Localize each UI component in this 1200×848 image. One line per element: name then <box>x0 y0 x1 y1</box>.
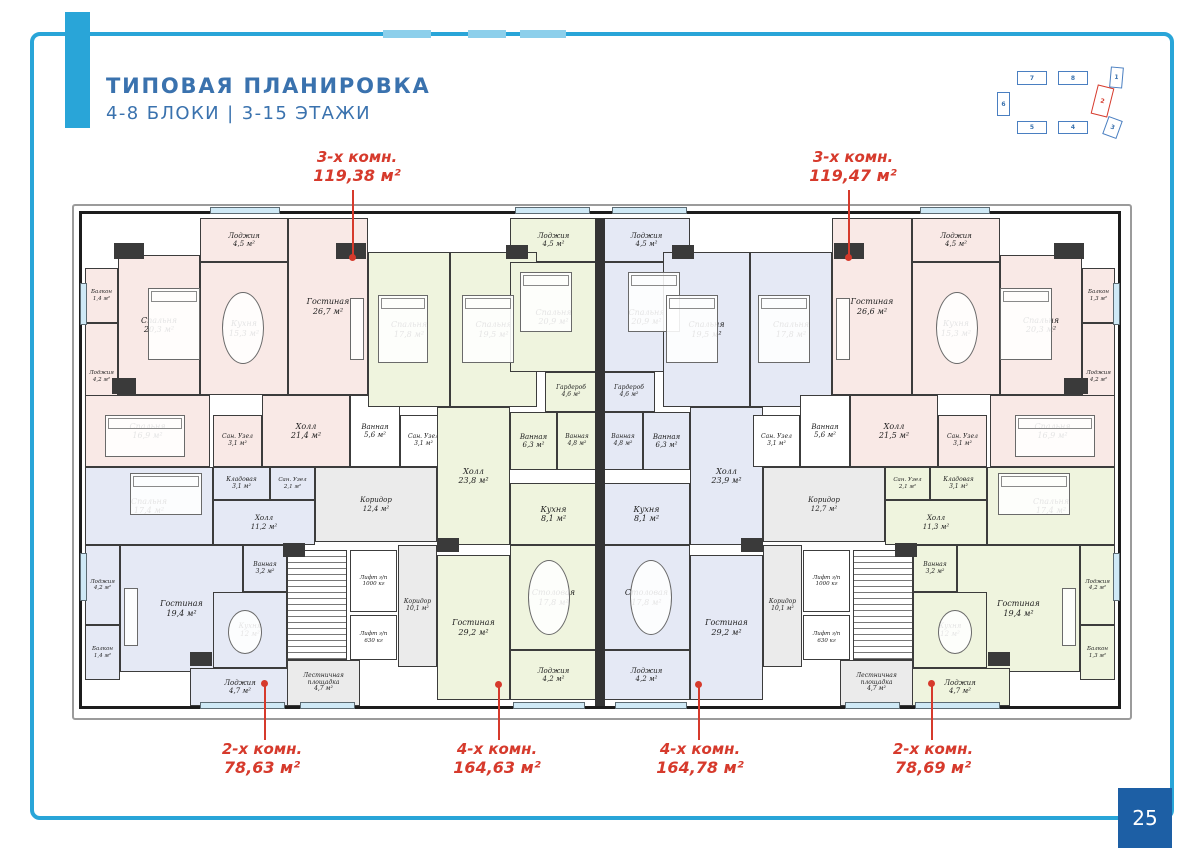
room-area: 3,1 м² <box>414 441 433 448</box>
room-label: Холл <box>255 514 273 522</box>
watermark-fragment <box>520 30 566 38</box>
room-label: Коридор <box>808 496 840 504</box>
table-icon <box>938 610 972 654</box>
room: Лоджия4,2 м² <box>85 545 120 625</box>
room: Кухня8,1 м² <box>510 483 597 545</box>
room-area: 3,1 м² <box>228 441 247 448</box>
leader-line <box>848 190 850 257</box>
table-icon <box>630 560 672 635</box>
bed-icon <box>148 288 200 360</box>
wall-pier <box>672 245 694 259</box>
room: Ванная4,8 м² <box>603 412 643 470</box>
room-area: 2,1 м² <box>284 484 301 490</box>
room-area: 4,5 м² <box>945 240 967 248</box>
room-area: 4,2 м² <box>543 675 565 683</box>
room: Сан. Узел3,1 м² <box>213 415 262 467</box>
elevator: Лифт г/п630 кг <box>350 615 397 660</box>
room-label: Лоджия <box>944 679 976 687</box>
leader-line <box>698 685 700 740</box>
wall-pier <box>506 245 528 259</box>
room-area: 19,4 м² <box>1003 609 1033 618</box>
bed-icon <box>998 473 1070 515</box>
table-icon <box>228 610 262 654</box>
room-label: Лоджия <box>228 232 260 240</box>
room: Лоджия4,2 м² <box>1080 545 1115 625</box>
room-label: Лоджия <box>538 232 570 240</box>
wall-pier <box>112 378 136 394</box>
room-area: 21,4 м² <box>291 431 321 440</box>
room-area: 4,7 м² <box>867 686 886 693</box>
room-area: 11,3 м² <box>923 523 949 531</box>
site-map-block-8: 8 <box>1058 71 1088 85</box>
room-label: Лоджия <box>631 667 663 675</box>
window <box>612 207 687 214</box>
leader-dot <box>845 254 852 261</box>
table-icon <box>528 560 570 635</box>
sofa-icon <box>124 588 138 646</box>
site-map-block-5: 5 <box>1017 121 1047 134</box>
window <box>920 207 990 214</box>
apartment-type-label: 2-х комн.78,63 м² <box>197 740 327 777</box>
room: Гостиная29,2 м² <box>690 555 763 700</box>
wall-pier <box>283 543 305 557</box>
site-map-block-1: 1 <box>1109 66 1124 88</box>
room-area: 1000 кг <box>363 581 385 587</box>
room-area: 4,5 м² <box>543 240 565 248</box>
block-number: 5 <box>1030 124 1034 131</box>
site-map-block-7: 7 <box>1017 71 1047 85</box>
window <box>1113 283 1120 325</box>
room: Лоджия4,2 м² <box>510 650 597 700</box>
room: Кладовая3,1 м² <box>930 467 987 500</box>
room-label: Холл <box>927 514 945 522</box>
elevator: Лифт г/п1000 кг <box>803 550 850 612</box>
block-number: 8 <box>1071 75 1075 82</box>
room: Лоджия4,7 м² <box>910 668 1010 706</box>
wall-pier <box>190 652 212 666</box>
room: Ванная6,3 м² <box>510 412 557 470</box>
room-area: 5,6 м² <box>364 431 386 439</box>
sofa-icon <box>1062 588 1076 646</box>
room: Гостиная29,2 м² <box>437 555 510 700</box>
site-map-block-2: 2 <box>1091 84 1115 117</box>
room-label: Кухня <box>541 505 567 514</box>
wall-pier <box>988 652 1010 666</box>
apartment-rooms-count: 4-х комн. <box>432 740 562 758</box>
room: Сан. Узел2,1 м² <box>885 467 930 500</box>
room: Балкон1,3 м² <box>1080 625 1115 680</box>
room-label: Гостиная <box>851 297 894 306</box>
room-label: Лоджия <box>224 679 256 687</box>
room: Лоджия4,2 м² <box>603 650 690 700</box>
room-area: 3,1 м² <box>767 441 786 448</box>
room: Кладовая3,1 м² <box>213 467 270 500</box>
room-area: 4,7 м² <box>229 687 251 695</box>
wall-pier <box>1054 243 1084 259</box>
room: Ванная4,8 м² <box>557 412 597 470</box>
room: Холл23,8 м² <box>437 407 510 545</box>
window <box>515 207 590 214</box>
window <box>210 207 280 214</box>
room-label: Ванная <box>520 433 547 441</box>
leader-line <box>352 190 354 257</box>
room-area: 1,3 м² <box>1090 296 1107 302</box>
room: Ванная5,6 м² <box>800 395 850 467</box>
window <box>513 702 585 709</box>
room-area: 8,1 м² <box>634 514 659 523</box>
bed-icon <box>130 473 202 515</box>
apartment-type-label: 3-х комн.119,38 м² <box>292 148 422 185</box>
page-title: ТИПОВАЯ ПЛАНИРОВКА <box>106 74 431 98</box>
room-label: Холл <box>296 422 317 431</box>
room: Коридор12,7 м² <box>763 467 885 542</box>
room-area: 4,8 м² <box>614 441 633 448</box>
apartment-rooms-count: 2-х комн. <box>197 740 327 758</box>
site-map-block-4: 4 <box>1058 121 1088 134</box>
window <box>80 553 87 601</box>
room-area: 1,4 м² <box>93 296 110 302</box>
room-label: Ванная <box>811 423 838 431</box>
accent-bar <box>65 12 90 128</box>
room: Коридор12,4 м² <box>315 467 437 542</box>
apartment-area: 119,38 м² <box>292 166 422 185</box>
block-number: 2 <box>1100 97 1106 105</box>
room-area: 3,1 м² <box>232 484 251 491</box>
room-area: 1,3 м² <box>1089 653 1106 659</box>
apartment-type-label: 4-х комн.164,78 м² <box>635 740 765 777</box>
room-area: 26,6 м² <box>857 307 887 316</box>
room: Коридор10,1 м² <box>398 545 437 667</box>
window <box>615 702 687 709</box>
room-label: Гостиная <box>160 599 203 608</box>
window <box>845 702 900 709</box>
room-label: Холл <box>716 467 737 476</box>
room-area: 6,3 м² <box>656 441 678 449</box>
room-label: Лоджия <box>940 232 972 240</box>
apartment-area: 119,47 м² <box>788 166 918 185</box>
bed-icon <box>1000 288 1052 360</box>
room-area: 4,8 м² <box>568 441 587 448</box>
stairs <box>287 550 347 660</box>
block-number: 4 <box>1071 124 1075 131</box>
room-area: 4,2 м² <box>636 675 658 683</box>
leader-dot <box>261 680 268 687</box>
sofa-icon <box>836 298 850 360</box>
room: Ванная3,2 м² <box>243 545 287 592</box>
room-area: 4,6 м² <box>620 392 639 399</box>
room: Лоджия4,5 м² <box>912 218 1000 262</box>
site-map-block-6: 6 <box>997 92 1010 116</box>
window <box>200 702 285 709</box>
bed-icon <box>105 415 185 457</box>
block-number: 7 <box>1030 75 1034 82</box>
room-label: Холл <box>884 422 905 431</box>
wall-pier <box>437 538 459 552</box>
room-area: 4,5 м² <box>636 240 658 248</box>
room-area: 3,2 м² <box>256 569 275 576</box>
table-icon <box>222 292 264 364</box>
room-area: 4,6 м² <box>562 392 581 399</box>
apartment-rooms-count: 3-х комн. <box>788 148 918 166</box>
apartment-rooms-count: 2-х комн. <box>868 740 998 758</box>
room: Холл11,2 м² <box>213 500 315 545</box>
watermark-fragment <box>383 30 431 38</box>
room-area: 630 кг <box>817 638 835 644</box>
table-icon <box>936 292 978 364</box>
room: Сан. Узел3,1 м² <box>938 415 987 467</box>
leader-line <box>931 684 933 740</box>
room: Балкон1,4 м² <box>85 625 120 680</box>
apartment-area: 78,69 м² <box>868 758 998 777</box>
bed-icon <box>758 295 810 363</box>
site-map-block-3: 3 <box>1102 116 1123 139</box>
room-area: 3,1 м² <box>953 441 972 448</box>
room-label: Ванная <box>361 423 388 431</box>
leader-dot <box>349 254 356 261</box>
room-label: Лестничная площадка <box>841 673 912 687</box>
apartment-type-label: 2-х комн.78,69 м² <box>868 740 998 777</box>
room-area: 21,5 м² <box>879 431 909 440</box>
apartment-area: 164,63 м² <box>432 758 562 777</box>
stair-landing: Лестничная площадка4,7 м² <box>287 660 360 706</box>
room-area: 4,5 м² <box>233 240 255 248</box>
room-area: 11,2 м² <box>251 523 277 531</box>
page-subtitle: 4-8 БЛОКИ | 3-15 ЭТАЖИ <box>106 103 371 124</box>
bed-icon <box>520 272 572 332</box>
room: Ванная3,2 м² <box>913 545 957 592</box>
room: Сан. Узел2,1 м² <box>270 467 315 500</box>
leader-dot <box>495 681 502 688</box>
room: Холл21,4 м² <box>262 395 350 467</box>
wall-pier <box>114 243 144 259</box>
apartment-area: 78,63 м² <box>197 758 327 777</box>
room-area: 4,7 м² <box>949 687 971 695</box>
elevator: Лифт г/п1000 кг <box>350 550 397 612</box>
room: Лоджия4,5 м² <box>200 218 288 262</box>
room-area: 3,1 м² <box>949 484 968 491</box>
room-area: 29,2 м² <box>711 628 741 637</box>
room: Балкон1,4 м² <box>85 268 118 323</box>
room: Гардероб4,6 м² <box>603 372 655 412</box>
window <box>80 283 87 325</box>
apartment-type-label: 3-х комн.119,47 м² <box>788 148 918 185</box>
apartment-rooms-count: 4-х комн. <box>635 740 765 758</box>
room-area: 6,3 м² <box>523 441 545 449</box>
room-label: Лоджия <box>631 232 663 240</box>
elevator: Лифт г/п630 кг <box>803 615 850 660</box>
room-label: Холл <box>463 467 484 476</box>
window <box>915 702 1000 709</box>
room: Холл21,5 м² <box>850 395 938 467</box>
room: Гардероб4,6 м² <box>545 372 597 412</box>
window <box>1113 553 1120 601</box>
room-area: 1,4 м² <box>94 653 111 659</box>
room-area: 19,4 м² <box>166 609 196 618</box>
room: Сан. Узел3,1 м² <box>753 415 800 467</box>
room: Ванная6,3 м² <box>643 412 690 470</box>
room-label: Гостиная <box>997 599 1040 608</box>
room: Лоджия4,7 м² <box>190 668 290 706</box>
page-number: 25 <box>1118 788 1172 848</box>
room-area: 2,1 м² <box>899 484 916 490</box>
window <box>300 702 355 709</box>
room: Коридор10,1 м² <box>763 545 802 667</box>
room-area: 12,4 м² <box>363 505 389 513</box>
room-label: Кухня <box>634 505 660 514</box>
room-area: 5,6 м² <box>814 431 836 439</box>
room-area: 26,7 м² <box>313 307 343 316</box>
apartment-rooms-count: 3-х комн. <box>292 148 422 166</box>
room-area: 630 кг <box>364 638 382 644</box>
room-area: 3,2 м² <box>926 569 945 576</box>
apartment-area: 164,78 м² <box>635 758 765 777</box>
room-label: Гостиная <box>705 618 748 627</box>
room-label: Коридор <box>360 496 392 504</box>
sofa-icon <box>350 298 364 360</box>
leader-dot <box>928 680 935 687</box>
room-label: Лоджия <box>538 667 570 675</box>
bed-icon <box>1015 415 1095 457</box>
room-label: Гостиная <box>452 618 495 627</box>
stairs <box>853 550 913 660</box>
room: Балкон1,3 м² <box>1082 268 1115 323</box>
room-area: 4,2 м² <box>1090 377 1107 383</box>
room-area: 1000 кг <box>816 581 838 587</box>
room-label: Ванная <box>653 433 680 441</box>
block-number: 1 <box>1114 74 1119 81</box>
wall-pier <box>1064 378 1088 394</box>
room-area: 8,1 м² <box>541 514 566 523</box>
room: Холл11,3 м² <box>885 500 987 545</box>
bed-icon <box>378 295 428 363</box>
watermark-fragment <box>468 30 506 38</box>
leader-line <box>264 684 266 740</box>
central-shaft <box>595 218 605 706</box>
room-label: Лестничная площадка <box>288 673 359 687</box>
bed-icon <box>462 295 514 363</box>
room-area: 10,1 м² <box>406 606 429 613</box>
leader-dot <box>695 681 702 688</box>
room-area: 29,2 м² <box>458 628 488 637</box>
room-label: Гостиная <box>307 297 350 306</box>
room-area: 4,2 м² <box>94 585 111 591</box>
room-area: 23,9 м² <box>711 476 741 485</box>
room-area: 4,7 м² <box>314 686 333 693</box>
room-area: 4,2 м² <box>1089 585 1106 591</box>
room-area: 4,2 м² <box>93 377 110 383</box>
room-area: 10,1 м² <box>771 606 794 613</box>
stair-landing: Лестничная площадка4,7 м² <box>840 660 913 706</box>
bed-icon <box>666 295 718 363</box>
room: Кухня8,1 м² <box>603 483 690 545</box>
wall-pier <box>895 543 917 557</box>
wall-pier <box>741 538 763 552</box>
room-area: 23,8 м² <box>458 476 488 485</box>
apartment-type-label: 4-х комн.164,63 м² <box>432 740 562 777</box>
block-number: 6 <box>1001 101 1005 108</box>
room-area: 12,7 м² <box>811 505 837 513</box>
leader-line <box>498 685 500 740</box>
block-number: 3 <box>1109 123 1115 131</box>
